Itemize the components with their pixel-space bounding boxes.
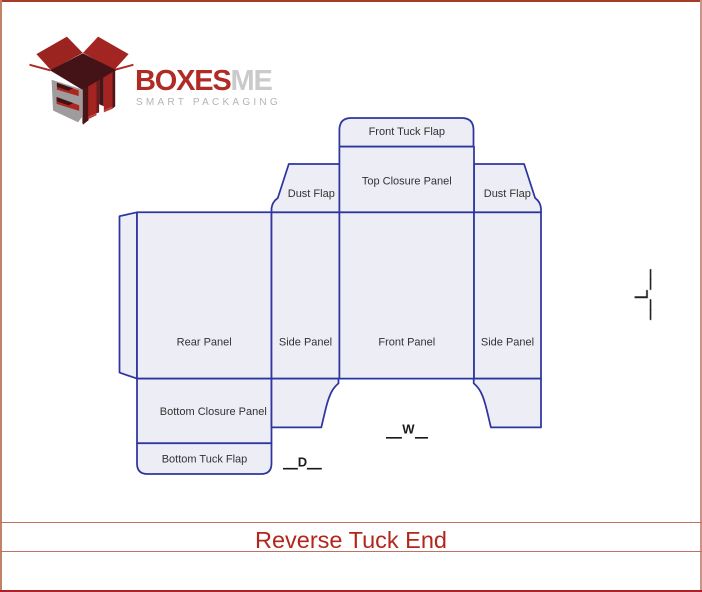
svg-text:D: D (298, 454, 307, 469)
svg-text:Front Tuck Flap: Front Tuck Flap (369, 126, 445, 138)
svg-text:Bottom Closure Panel: Bottom Closure Panel (160, 406, 267, 418)
svg-text:Side Panel: Side Panel (481, 337, 534, 349)
svg-text:Dust Flap: Dust Flap (484, 188, 531, 200)
svg-text:Top Closure Panel: Top Closure Panel (362, 175, 452, 187)
svg-text:__L__: __L__ (632, 268, 653, 320)
svg-text:W: W (402, 422, 415, 437)
svg-text:Rear Panel: Rear Panel (177, 337, 232, 349)
svg-text:Side Panel: Side Panel (279, 337, 332, 349)
svg-text:Dust Flap: Dust Flap (288, 188, 335, 200)
svg-text:Front Panel: Front Panel (378, 337, 435, 349)
svg-text:Bottom Tuck Flap: Bottom Tuck Flap (162, 454, 248, 466)
